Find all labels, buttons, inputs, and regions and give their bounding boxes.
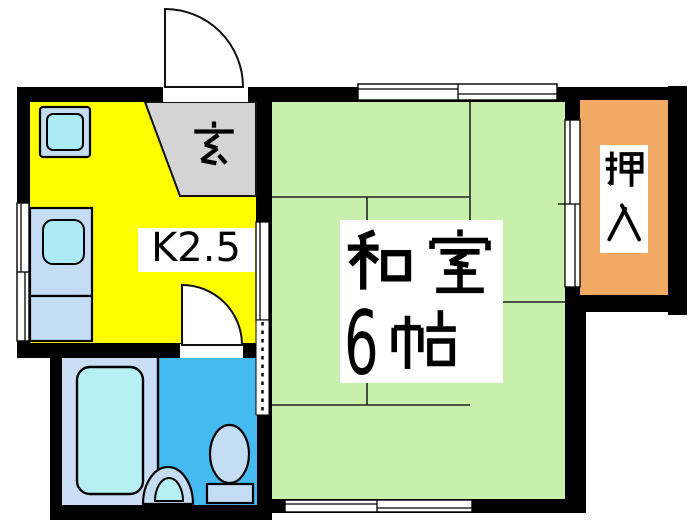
- oshiire-label: [600, 145, 648, 253]
- washitsu-size-number: 6: [344, 293, 379, 395]
- toilet: [207, 425, 253, 503]
- window-bottom: [285, 500, 472, 512]
- window-left: [17, 203, 29, 341]
- stove: [40, 107, 90, 157]
- floor-plan-svg: K2.5 6: [0, 0, 700, 525]
- kitchen-counter: [30, 296, 92, 341]
- entrance-threshold: [163, 87, 248, 102]
- toilet-bowl: [210, 425, 249, 483]
- window-top: [358, 84, 557, 100]
- kitchen-label: K2.5: [138, 225, 255, 272]
- wall-top: [17, 87, 687, 102]
- washitsu-label: 6: [340, 220, 503, 396]
- wall-closet-right: [668, 86, 687, 315]
- kitchen-sink-counter: [30, 208, 92, 341]
- sliding-door-kitchen-tatami: [256, 222, 269, 415]
- kitchen-sink: [43, 220, 84, 264]
- toilet-tank: [207, 484, 253, 503]
- washroom-threshold: [180, 344, 243, 358]
- bathtub: [77, 367, 143, 494]
- wall-bath-bottom: [50, 505, 272, 520]
- wall-closet-bottom: [565, 295, 687, 312]
- wall-bath-left: [50, 343, 62, 520]
- floor-plan: 玄 和室 6帖 押入: [0, 0, 700, 525]
- kitchen-label-text: K2.5: [151, 225, 241, 271]
